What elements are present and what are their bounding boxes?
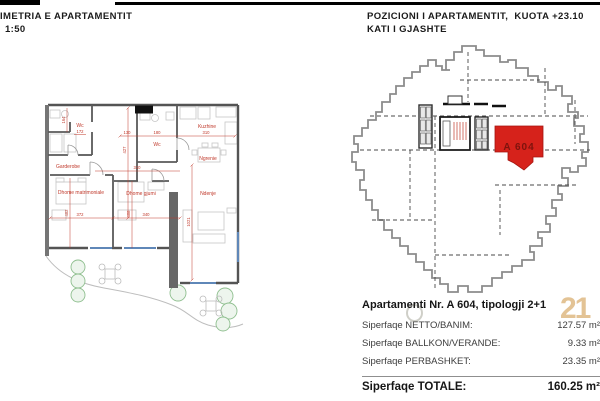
dim-130: 130 — [124, 130, 132, 135]
dim-372: 372 — [77, 212, 85, 217]
room-label-wc1: Wc — [76, 123, 84, 129]
entry-shaft — [135, 106, 153, 114]
summary-row-totale: Siperfaqe TOTALE: 160.25 m² — [362, 376, 600, 401]
summary-row-perbashket: Siperfaqe PERBASHKET: 23.35 m² — [362, 356, 600, 374]
top-border-line — [115, 2, 600, 5]
floor-plan: 164 172 130 180 310 427 310 402 408 372 … — [20, 70, 280, 350]
interior-walls — [48, 105, 177, 248]
perbashket-label: Siperfaqe PERBASHKET: — [362, 356, 471, 367]
plan-title: IMETRIA E APARTAMENTIT — [0, 10, 132, 23]
summary-row-apartment: Apartamenti Nr. A 604, tipologji 2+1 — [362, 299, 600, 320]
perbashket-value: 23.35 m² — [563, 356, 600, 367]
position-title-line1: POZICIONI I APARTAMENTIT, KUOTA +23.10 — [367, 10, 584, 23]
top-left-border-bar — [0, 0, 40, 5]
dim-164: 164 — [61, 116, 66, 124]
dim-180: 180 — [154, 130, 162, 135]
room-label-matrimoniale: Dhome matrimoniale — [58, 190, 104, 196]
drawing-sheet: { "header": { "plan_title": "IMETRIA E A… — [0, 0, 600, 400]
netto-value: 127.57 m² — [557, 320, 600, 331]
dim-310b: 310 — [134, 165, 142, 170]
dim-172: 172 — [77, 129, 85, 134]
plan-scale: 1:50 — [0, 23, 132, 36]
dim-340: 340 — [143, 212, 151, 217]
dim-402: 402 — [64, 209, 69, 217]
room-label-gjumi: Dhome gjumi — [126, 191, 155, 197]
core-wall — [169, 192, 178, 288]
room-label-wc2: Wc — [153, 142, 161, 148]
room-label-kuzhine: Kuzhine — [198, 124, 216, 130]
ballkon-label: Siperfaqe BALLKON/VERANDE: — [362, 338, 500, 349]
summary-row-ballkon: Siperfaqe BALLKON/VERANDE: 9.33 m² — [362, 338, 600, 356]
position-title-line2: KATI I GJASHTE — [367, 23, 584, 36]
ballkon-value: 9.33 m² — [568, 338, 600, 349]
garden-bushes — [71, 260, 237, 331]
dim-408: 408 — [126, 210, 131, 218]
summary-table: Apartamenti Nr. A 604, tipologji 2+1 Sip… — [362, 299, 600, 401]
dim-1021: 1021 — [186, 217, 191, 227]
dim-427: 427 — [122, 146, 127, 154]
totale-label: Siperfaqe TOTALE: — [362, 381, 466, 393]
apartment-heading: Apartamenti Nr. A 604, tipologji 2+1 — [362, 299, 546, 311]
apartment-highlight-label: A 604 — [503, 142, 534, 153]
room-label-garderobe: Garderobe — [56, 164, 80, 170]
totale-value: 160.25 m² — [548, 381, 600, 393]
room-label-ndenje: Ndenje — [200, 191, 216, 197]
left-outer-wall — [45, 105, 49, 256]
dim-310a: 310 — [203, 130, 211, 135]
summary-row-netto: Siperfaqe NETTO/BANIM: 127.57 m² — [362, 320, 600, 338]
position-plan: A 604 — [350, 40, 600, 300]
room-label-ngrenie: Ngrenie — [199, 156, 217, 162]
netto-label: Siperfaqe NETTO/BANIM: — [362, 320, 473, 331]
